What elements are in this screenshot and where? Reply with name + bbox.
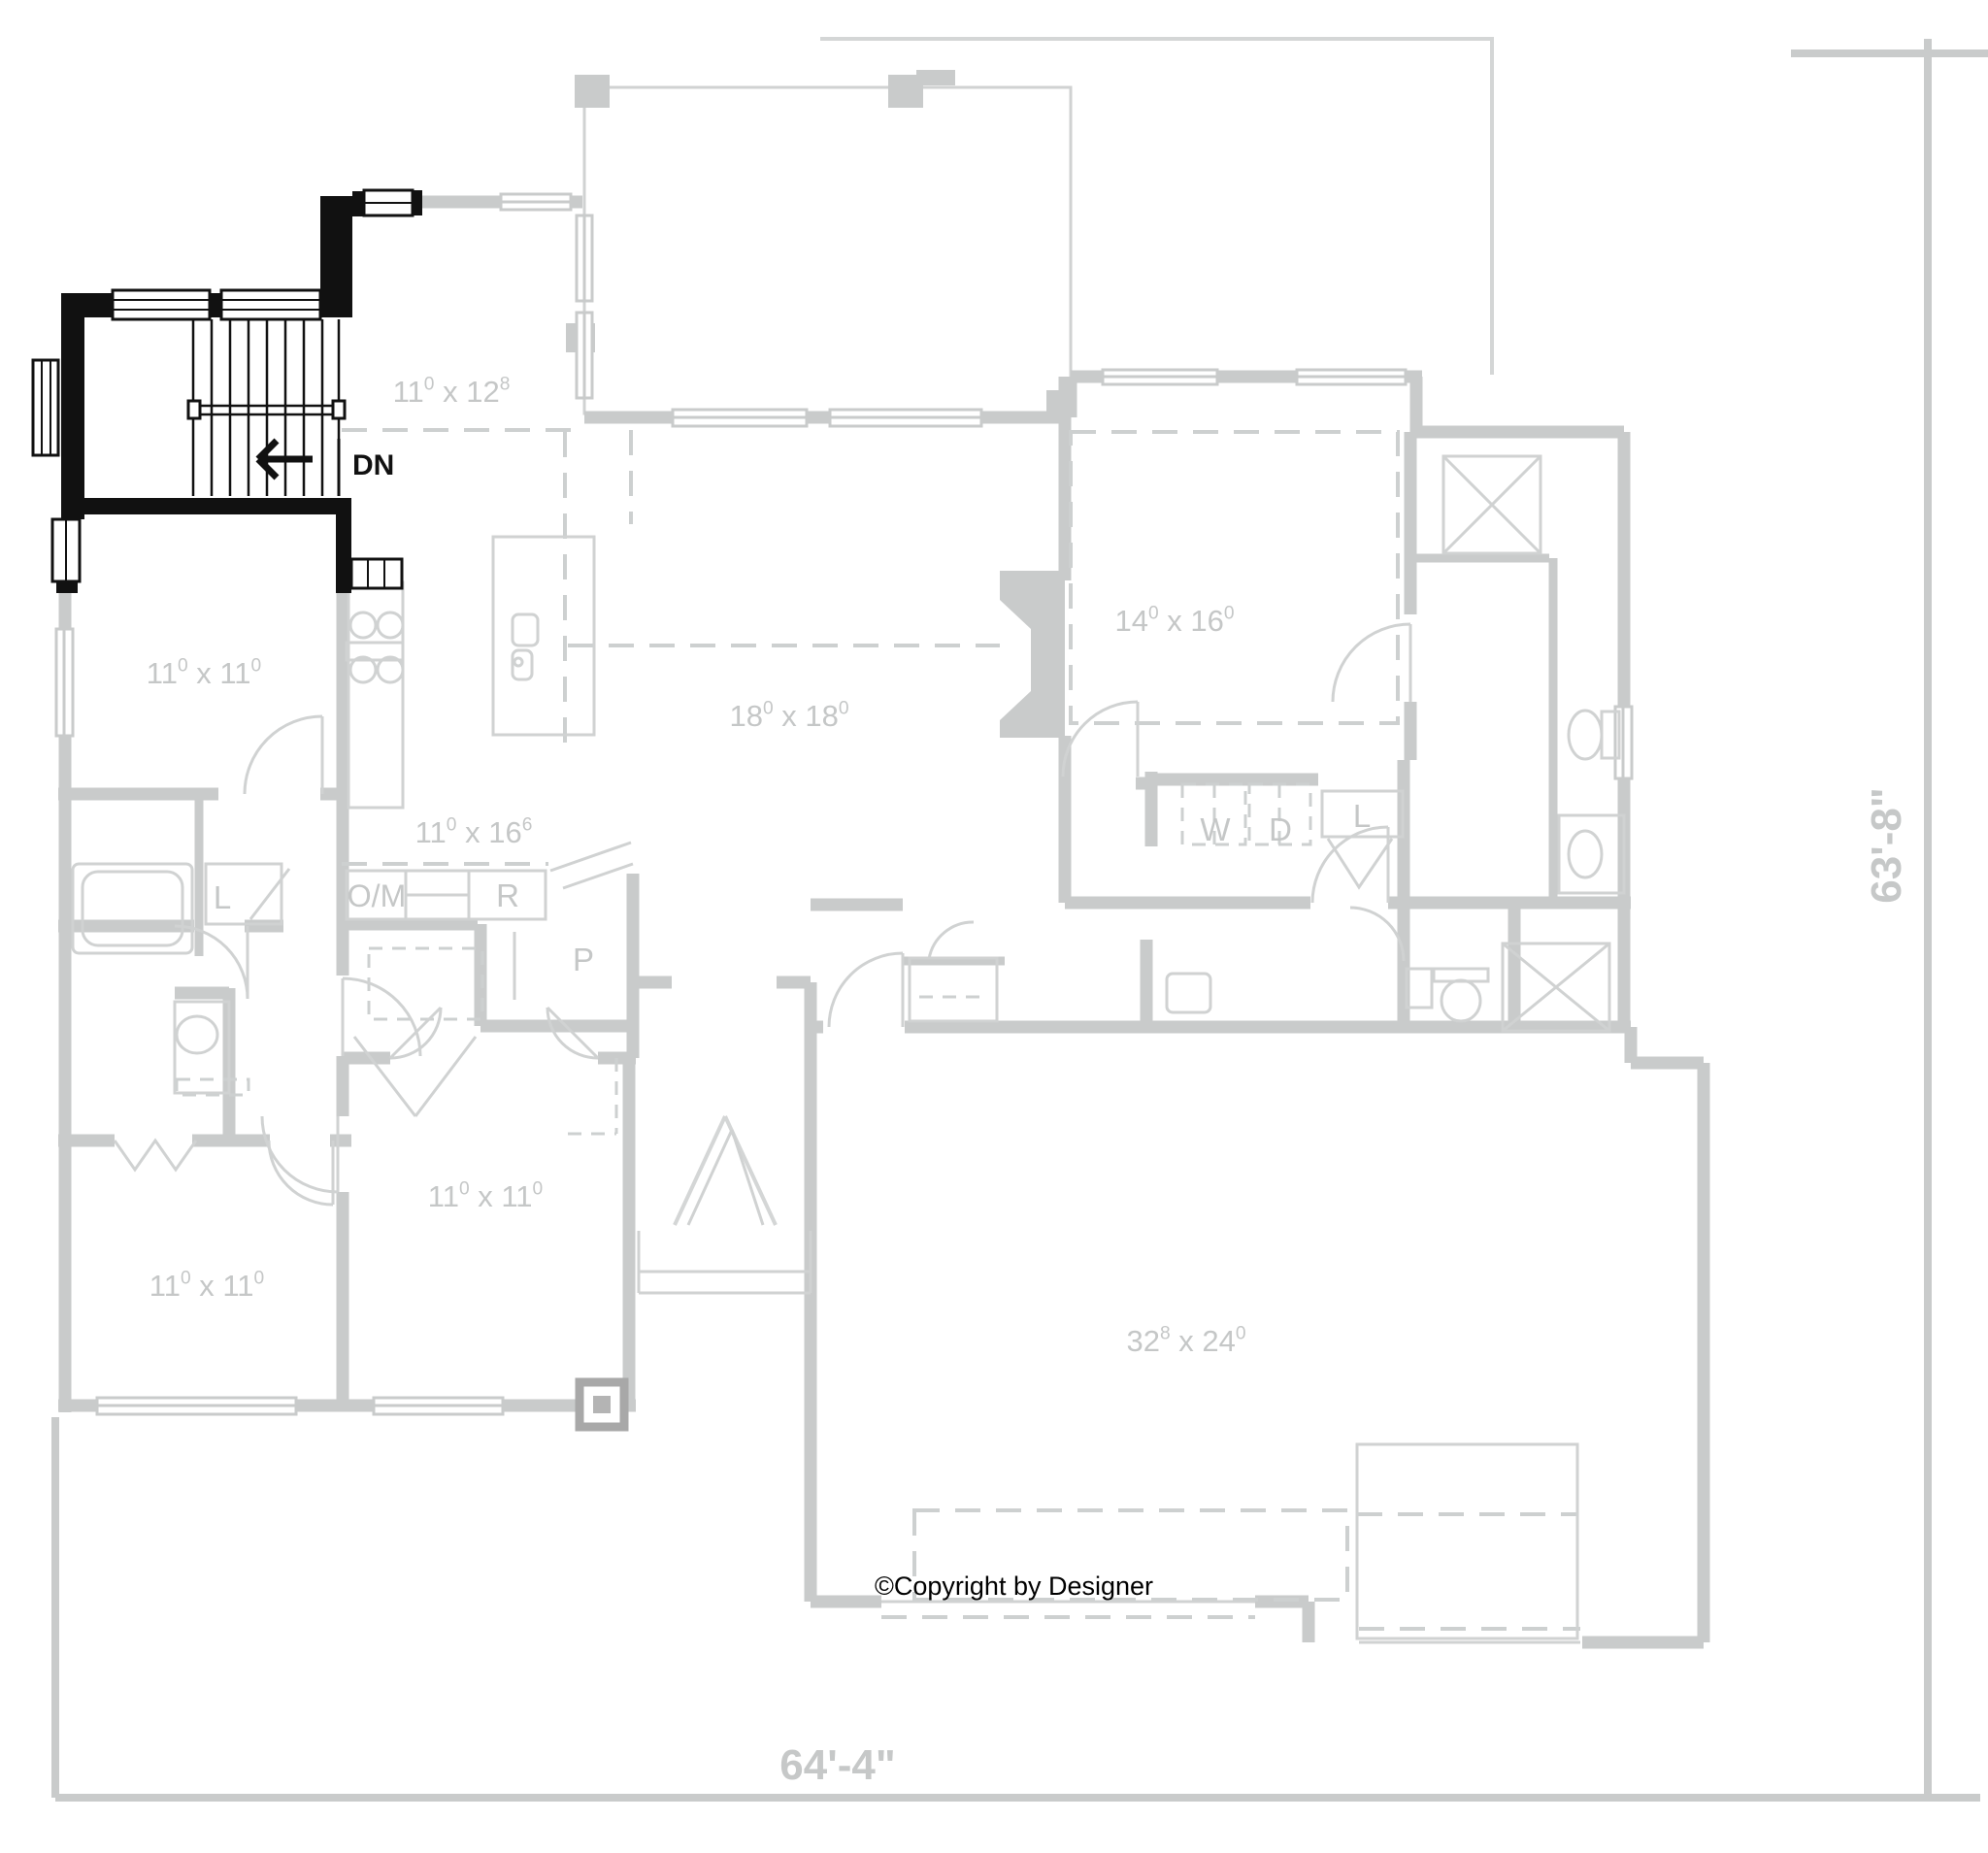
down-arrow [258, 439, 339, 496]
stair-window [364, 190, 413, 215]
window [577, 215, 592, 301]
fixture-label-washer: W [1200, 811, 1231, 847]
window [830, 410, 981, 426]
fixtures [73, 456, 1624, 1642]
stair-window [351, 559, 402, 588]
room-dims-kitchen: 110 x 166 [415, 815, 533, 849]
fixture-label-refrigerator: R [496, 877, 519, 913]
overall-width-dimension: 64'-4" [779, 1741, 895, 1789]
covered-porch-outline [566, 75, 1072, 415]
room-dims-family: 180 x 180 [729, 699, 848, 733]
fixture-label-linen-laundry: L [1353, 798, 1371, 834]
window [501, 194, 571, 210]
window [374, 1398, 503, 1414]
floor-plan-page: 110 x 128140 x 160180 x 180110 x 166110 … [0, 0, 1988, 1853]
room-dims-suite: 140 x 160 [1114, 604, 1234, 638]
stair-window [113, 290, 210, 319]
room-dims-eating: 110 x 128 [393, 375, 511, 409]
window [673, 410, 807, 426]
window [97, 1398, 296, 1414]
fixture-label-oven-microwave: O/M [348, 878, 406, 913]
fixture-label-pantry: P [573, 942, 594, 977]
stair-window [221, 290, 320, 319]
windows [56, 194, 1632, 1414]
stair-down-label: DN [352, 449, 394, 481]
overall-depth-dimension: 63'-8" [1863, 787, 1910, 903]
window [56, 629, 73, 736]
window [1297, 370, 1406, 384]
fixture-label-linen-bath: L [214, 879, 231, 915]
stair-window [52, 519, 80, 581]
bay-window [33, 360, 58, 455]
room-dims-br3: 110 x 110 [149, 1269, 264, 1303]
floor-plan-svg: 110 x 128140 x 160180 x 180110 x 166110 … [0, 0, 1988, 1853]
room-dims-garage: 328 x 240 [1126, 1324, 1245, 1358]
fixture-label-dryer: D [1269, 811, 1292, 847]
window [1103, 370, 1217, 384]
copyright-text: ©Copyright by Designer [875, 1572, 1153, 1601]
stairwell-highlight [33, 190, 422, 593]
room-dims-br2: 110 x 110 [147, 656, 261, 690]
room-dims-flex: 110 x 110 [428, 1179, 543, 1213]
window [577, 313, 592, 398]
